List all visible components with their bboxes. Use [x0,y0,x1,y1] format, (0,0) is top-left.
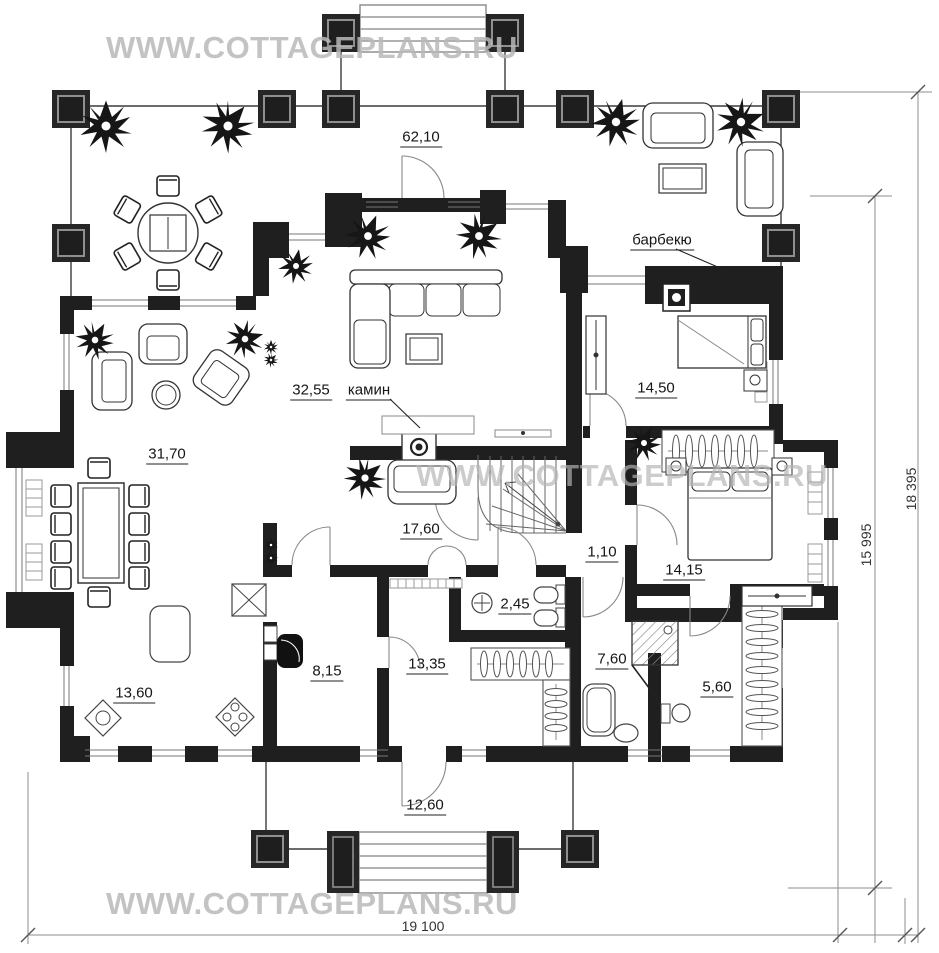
sitting-nook-furniture [92,324,253,410]
barbecue-unit [663,284,690,311]
dimension-height-outer: 18 395 [903,468,919,511]
room-area-label-bathroom-small: 2,45 [498,596,531,615]
watermark-bottom: WWW.COTTAGEPLANS.RU [106,886,518,922]
barbecue-label: барбекю [630,232,694,251]
floor-plan-page: WWW.COTTAGEPLANS.RU WWW.COTTAGEPLANS.RU … [0,0,939,953]
room-area-label-guest: 13,35 [406,656,448,675]
dimension-width-bottom: 19 100 [402,918,445,934]
room-area-label-corridor: 1,10 [585,544,618,563]
room-area-label-utility: 8,15 [310,663,343,682]
room-area-label-bedroom-right: 14,15 [663,562,705,581]
room-area-label-bedroom-top: 14,50 [635,380,677,399]
room-area-label-living: 32,55 [290,382,332,401]
room-area-label-bathroom: 7,60 [595,651,628,670]
room-area-label-veranda: 12,60 [404,797,446,816]
dining-furniture [51,458,149,607]
room-area-label-dining: 31,70 [146,446,188,465]
room-area-label-kitchen: 13,60 [113,685,155,704]
watermark-top: WWW.COTTAGEPLANS.RU [106,30,518,66]
watermark-center: WWW.COTTAGEPLANS.RU [416,458,828,494]
room-area-label-terrace: 62,10 [400,129,442,148]
room-area-label-wardrobe: 5,60 [700,679,733,698]
fireplace-label: камин [346,382,392,401]
dimension-height-inner: 15 995 [858,524,874,567]
room-area-label-hall: 17,60 [400,521,442,540]
